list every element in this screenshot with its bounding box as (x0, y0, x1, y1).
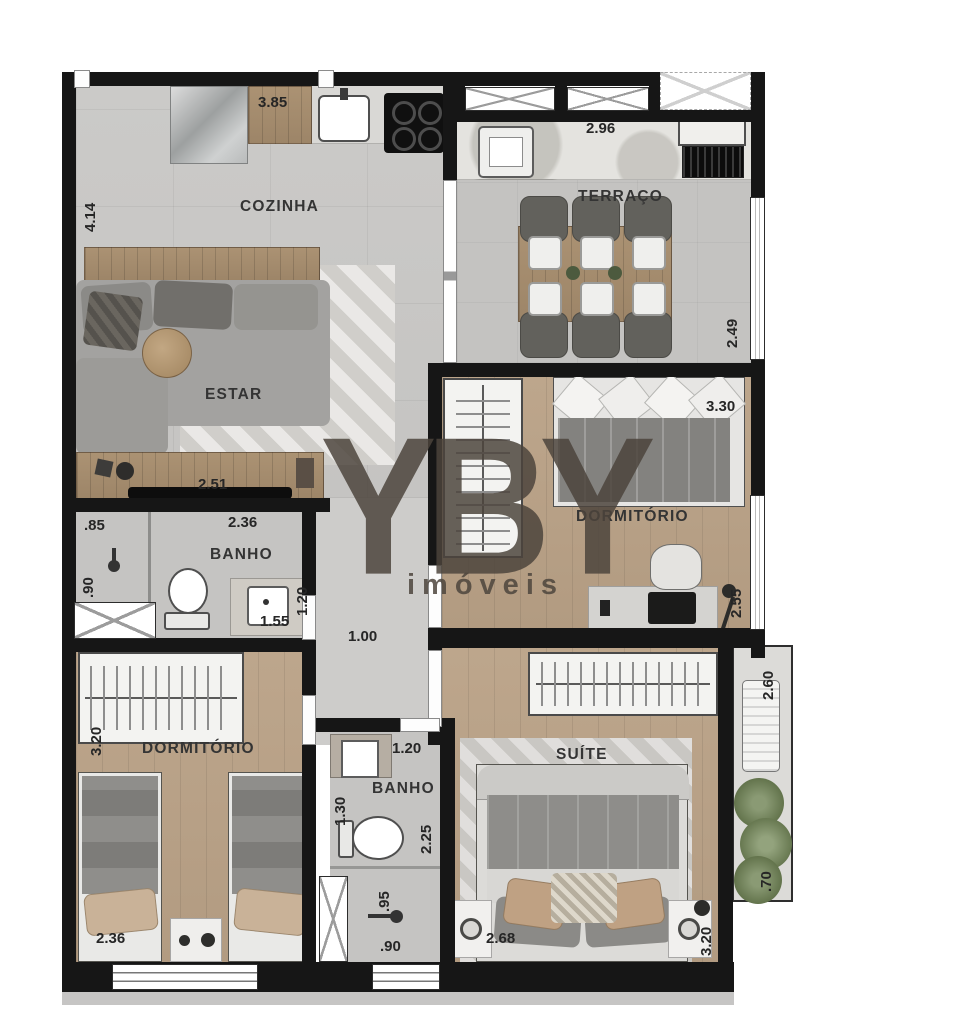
wall-suite-right (718, 634, 733, 962)
window-dorm2 (112, 964, 258, 990)
pillow (233, 887, 309, 936)
dim-banho2-width: 1.20 (392, 740, 421, 757)
toilet-bowl (168, 568, 208, 614)
wall-terraco-dorm1 (428, 363, 765, 377)
window-terraco-right (750, 197, 765, 360)
dim-banho2-depth: 2.25 (418, 806, 435, 854)
closet-hangers (90, 666, 233, 729)
desk-chair (650, 544, 702, 590)
dim-banho1-vanity: 1.55 (260, 613, 289, 630)
dim-cozinha-depth: 4.14 (82, 172, 99, 232)
shower-arm (112, 548, 116, 562)
shower-arm (368, 914, 392, 918)
decor-dot (201, 933, 215, 947)
dining-chair (572, 312, 620, 358)
window-terraco-2 (567, 87, 649, 111)
window-mullion (555, 86, 567, 112)
label-banho1: BANHO (210, 546, 273, 564)
dim-dorm1-width: 3.30 (706, 398, 735, 415)
window-mullion (649, 86, 660, 112)
dim-planter-width: .70 (758, 850, 775, 892)
bedside-bench (170, 918, 222, 962)
shower-divider-2 (330, 866, 440, 869)
label-dormitorio2: DORMITÓRIO (142, 740, 255, 758)
dining-chair (520, 312, 568, 358)
lamp-icon (460, 918, 482, 940)
toilet-tank (164, 612, 210, 630)
window-banho1 (74, 602, 156, 639)
dim-banho1-width: 2.36 (228, 514, 257, 531)
laundry-sink-basin (489, 137, 523, 167)
plate (632, 282, 666, 316)
wall-top (62, 72, 660, 86)
door-suite (428, 650, 442, 727)
table-centerpiece (566, 266, 580, 280)
dim-terraco-width: 2.96 (586, 120, 615, 137)
toilet-bowl-2 (352, 816, 404, 860)
dim-banho2-vanity: 1.30 (332, 782, 349, 826)
dim-suite-depth: 3.20 (698, 906, 715, 956)
dim-hall-width: 1.00 (348, 628, 377, 645)
sofa-console (84, 247, 320, 281)
jamb-mark (74, 70, 90, 88)
plate (580, 236, 614, 270)
label-cozinha: COZINHA (240, 198, 319, 216)
vanity-2 (330, 734, 392, 778)
door-banho2 (400, 718, 440, 732)
burner-icon (418, 101, 442, 125)
cooktop (384, 93, 444, 153)
shower-glass-divider (148, 512, 151, 604)
knit-pillow (83, 291, 144, 352)
dining-chair (624, 312, 672, 358)
window-mullion (457, 86, 465, 112)
dim-dorm2-bed: 2.36 (96, 930, 125, 947)
sofa (76, 280, 330, 426)
console-decor (116, 462, 134, 480)
watermark-subtitle: imóveis (407, 569, 564, 602)
floor-plan: 3.85 4.14 2.96 2.49 2.51 .85 2.36 .90 1.… (0, 0, 970, 1024)
decor-dot (179, 935, 190, 946)
kitchen-faucet-icon (340, 88, 348, 100)
vanity-sink (341, 740, 379, 778)
dim-cozinha-width: 3.85 (258, 94, 287, 111)
plate (580, 282, 614, 316)
wall-banho2-suite (440, 727, 455, 962)
door-estar-terraco (443, 180, 457, 363)
dim-suite-width: 2.68 (486, 930, 515, 947)
grill-top (678, 118, 746, 146)
laptop (648, 592, 696, 624)
burner-icon (418, 127, 442, 151)
wall-dorm1-suite (428, 628, 765, 648)
wall-left (62, 72, 76, 992)
console-decor (296, 458, 314, 488)
plate (528, 282, 562, 316)
dim-banho1-shower-d: .90 (80, 556, 97, 598)
table-centerpiece (608, 266, 622, 280)
window-terraco-1 (465, 87, 555, 111)
dim-terraco-depth: 2.49 (724, 298, 741, 348)
sofa-cushion (153, 280, 233, 330)
wall-right-mid (751, 360, 765, 495)
window-dorm1 (750, 495, 765, 630)
dim-banho1-depth: 1.20 (294, 570, 311, 616)
plate (632, 236, 666, 270)
burner-icon (392, 127, 416, 151)
console-decor (95, 459, 114, 478)
dim-banho2-shower-d: .95 (376, 874, 393, 912)
sofa-cushion (234, 284, 318, 330)
dim-banho1-shower-w: .85 (84, 517, 105, 534)
fridge (170, 86, 248, 164)
blanket (82, 776, 158, 894)
wall-estar-terraco (443, 72, 457, 180)
label-terraco: TERRAÇO (578, 188, 663, 206)
coffee-table (142, 328, 192, 378)
wall-shadow (62, 992, 734, 1005)
wall-right-top (751, 72, 765, 197)
wall-estar-banho1 (62, 498, 330, 512)
window-shower (372, 964, 440, 990)
single-bed-right (228, 772, 312, 962)
kitchen-sink (318, 95, 370, 142)
dim-dorm2-depth: 3.20 (88, 708, 105, 756)
closet-hangers (541, 662, 705, 705)
wall-banho1-dorm2 (62, 638, 316, 652)
lamp-icon (678, 918, 700, 940)
burner-icon (392, 101, 416, 125)
dim-banho2-shower-w: .90 (380, 938, 401, 955)
laundry-sink (478, 126, 534, 178)
blanket (232, 776, 308, 894)
dim-planter-depth: 2.60 (760, 650, 777, 700)
label-banho2: BANHO (372, 780, 435, 798)
closet-suite (528, 652, 718, 716)
dim-estar-console: 2.51 (198, 476, 227, 493)
jamb-mark (318, 70, 334, 88)
dim-dorm1-depth: 2.55 (728, 570, 745, 618)
faucet-icon (263, 599, 269, 605)
grill-grate (682, 146, 744, 178)
label-suite: SUÍTE (556, 746, 608, 764)
open-railing-band (660, 72, 751, 110)
plate (528, 236, 562, 270)
window-banho2 (319, 876, 348, 962)
patterned-pillow (551, 873, 617, 923)
door-dormitorio2 (302, 695, 316, 745)
label-estar: ESTAR (205, 386, 262, 404)
